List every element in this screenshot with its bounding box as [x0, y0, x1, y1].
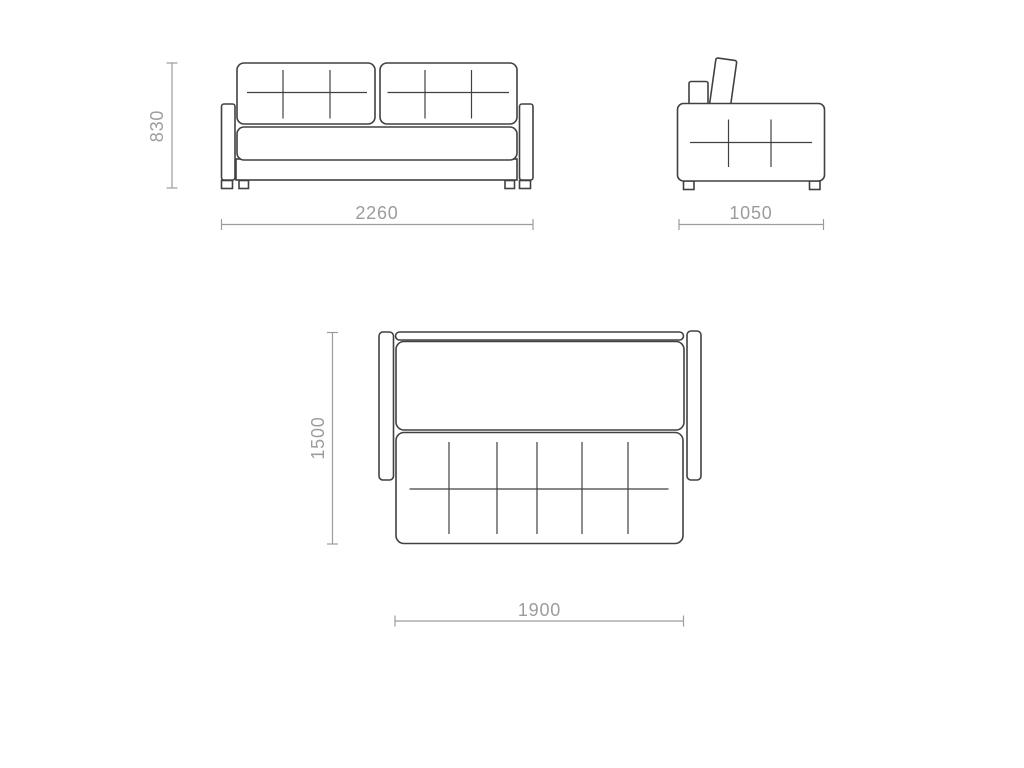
bed-back-strip: [396, 332, 684, 340]
dimension-bed-depth: 1500: [308, 333, 338, 545]
dimension-label-bed-depth: 1500: [308, 416, 328, 459]
front-seat-cushion: [237, 127, 517, 160]
dimension-front-height: 830: [147, 63, 178, 188]
front-foot-1: [222, 181, 233, 189]
bed-left-rail: [379, 332, 394, 480]
sofa-technical-drawing: 830 2260 1050 1500 1900: [0, 0, 1024, 768]
front-foot-4: [520, 181, 531, 189]
dimension-label-width: 2260: [355, 203, 398, 223]
front-back-cushion-right: [380, 63, 517, 124]
front-left-armrest: [222, 104, 236, 180]
front-foot-3: [505, 181, 515, 189]
side-view: [678, 58, 825, 190]
side-foot-2: [810, 181, 821, 190]
dimension-label-depth: 1050: [729, 203, 772, 223]
dimension-bed-width: 1900: [395, 600, 684, 627]
side-back-cushion: [709, 58, 737, 110]
unfolded-top-view: [379, 331, 701, 544]
bed-upper-mattress: [396, 342, 684, 431]
front-foot-2: [239, 181, 249, 189]
bed-right-rail: [687, 331, 701, 480]
side-foot-1: [684, 181, 695, 190]
front-base: [236, 159, 517, 180]
front-right-armrest: [520, 104, 534, 180]
dimension-front-width: 2260: [222, 203, 534, 230]
drawing-canvas: 830 2260 1050 1500 1900: [0, 0, 1024, 768]
dimension-label-bed-width: 1900: [518, 600, 561, 620]
bed-lower-mattress: [396, 433, 683, 544]
dimension-side-depth: 1050: [679, 203, 824, 230]
dimension-label-height: 830: [147, 110, 167, 142]
front-view: [222, 63, 534, 189]
front-back-cushion-left: [237, 63, 375, 124]
